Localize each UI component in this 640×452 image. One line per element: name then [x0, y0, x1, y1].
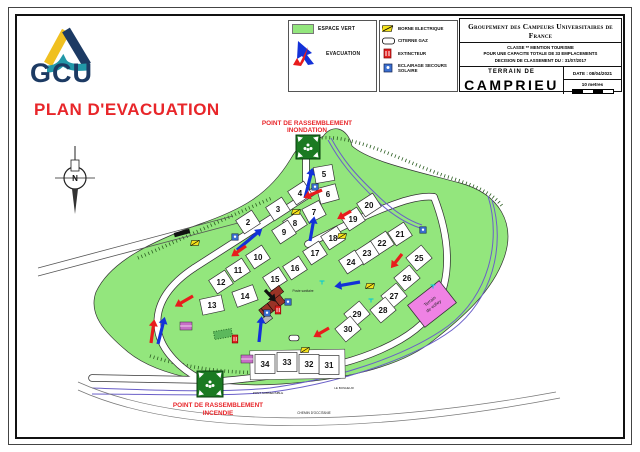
plot-31: 31: [319, 356, 339, 375]
title-block: Groupement des Campeurs Universitaires d…: [459, 18, 622, 92]
plot-number-9: 9: [282, 228, 287, 237]
plot-number-33: 33: [283, 358, 292, 367]
evacuation-arrows-icon: [292, 37, 322, 71]
page-title: PLAN D'EVACUATION: [34, 100, 220, 120]
plot-number-12: 12: [217, 278, 226, 287]
plot-number-19: 19: [349, 215, 358, 224]
plot-number-4: 4: [298, 189, 303, 198]
plot-number-13: 13: [208, 301, 217, 310]
map-label: Poste sanitaire: [292, 289, 313, 293]
eclairage-secours-label: ECLAIRAGE SECOURS SOLAIRE: [398, 63, 455, 73]
plot-number-7: 7: [312, 208, 317, 217]
citerne-gaz-label: CITERNE GAZ: [398, 38, 428, 43]
plan-date: DATE : 08/04/2021: [564, 67, 621, 80]
ext-map-icon: [275, 306, 281, 314]
plot-number-27: 27: [390, 292, 399, 301]
plot-number-29: 29: [353, 310, 362, 319]
plot-number-28: 28: [379, 306, 388, 315]
citerne-gaz-icon: [382, 37, 395, 45]
plot-33: 33: [277, 353, 297, 372]
rally-map-icon: [296, 135, 320, 159]
compass-n-label: N: [72, 174, 78, 183]
borne-map-icon: [365, 284, 374, 289]
scale-bar: [572, 89, 614, 94]
evacuation-plan-page: 2345678910111213141516171819202122232425…: [0, 0, 640, 452]
plot-number-3: 3: [276, 205, 281, 214]
class-line-2: POUR UNE CAPACITE TOTALE DE 33 EMPLACEME…: [460, 51, 621, 57]
plot-number-34: 34: [261, 360, 270, 369]
map-label: PONT SUBMERSIBLE: [253, 391, 283, 395]
class-line-3: DECISION DE CLASSEMENT DU : 31/07/2017: [460, 58, 621, 64]
map-label: POINT DE RASSEMBLEMENT: [262, 120, 352, 127]
plot-number-2: 2: [246, 218, 251, 227]
gcu-logo-text: GCU: [30, 58, 93, 89]
ecl-map-icon: [285, 299, 291, 305]
map-label: CHEMIN D'OCCITANIE: [297, 411, 331, 415]
ecl-map-icon: [420, 227, 426, 233]
plot-number-22: 22: [378, 239, 387, 248]
plot-32: 32: [299, 355, 319, 374]
extincteur-label: EXTINCTEUR: [398, 51, 426, 56]
plot-number-16: 16: [291, 264, 300, 273]
map-label: INONDATION: [287, 127, 327, 134]
site-name: CAMPRIEU: [460, 77, 563, 93]
borne-map-icon: [190, 241, 199, 246]
plot-number-14: 14: [241, 292, 250, 301]
borne-electrique-icon: [382, 24, 395, 33]
plot-number-30: 30: [344, 325, 353, 334]
plot-number-11: 11: [234, 266, 243, 275]
map-label: INCENDIE: [203, 410, 234, 417]
plot-number-20: 20: [365, 201, 374, 210]
compass-rose: N: [55, 146, 95, 214]
plot-number-15: 15: [271, 275, 280, 284]
hut-map-icon: [180, 322, 192, 330]
borne-map-icon: [291, 210, 300, 215]
borne-map-icon: [300, 348, 309, 353]
hut-map-icon: [241, 355, 253, 363]
plot-number-32: 32: [305, 360, 314, 369]
plot-number-10: 10: [254, 253, 263, 262]
map-label: LE BONHEUR: [334, 386, 354, 390]
plot-number-26: 26: [403, 274, 412, 283]
espace-vert-label: ESPACE VERT: [318, 26, 355, 32]
eclairage-secours-icon: [382, 63, 395, 73]
gcu-logo: GCU: [26, 18, 136, 96]
plot-number-23: 23: [363, 249, 372, 258]
plot-number-25: 25: [415, 254, 424, 263]
plot-34: 34: [255, 355, 275, 374]
plot-number-8: 8: [293, 219, 298, 228]
legend-espace-evacuation: ESPACE VERT EVACUATION: [288, 20, 377, 92]
classification-info: CLASSE ** MENTION TOURISME POUR UNE CAPA…: [460, 43, 621, 67]
plot-number-24: 24: [347, 258, 356, 267]
evacuation-label: EVACUATION: [326, 51, 360, 57]
organisation-name: Groupement des Campeurs Universitaires d…: [460, 19, 621, 43]
terrain-de-label: TERRAIN DE: [460, 69, 563, 75]
ext-map-icon: [232, 335, 238, 343]
ecl-map-icon: [232, 234, 238, 240]
borne-electrique-label: BORNE ELECTRIQUE: [398, 26, 443, 31]
extincteur-icon: [382, 48, 395, 59]
rally-map-icon: [197, 371, 223, 397]
ecl-map-icon: [312, 184, 318, 190]
citerne-map-icon: [289, 335, 299, 341]
ecl-map-icon: [264, 310, 270, 316]
chemin-lines: [78, 382, 560, 426]
espace-vert-swatch: [292, 24, 314, 34]
borne-map-icon: [337, 234, 346, 239]
plot-number-17: 17: [311, 249, 320, 258]
scale-label: 10 metres: [564, 80, 621, 87]
plot-number-18: 18: [329, 234, 338, 243]
plot-number-31: 31: [325, 361, 334, 370]
plot-number-6: 6: [326, 190, 331, 199]
plot-number-5: 5: [322, 170, 327, 179]
legend-equipment: BORNE ELECTRIQUE CITERNE GAZ EXTINCTEUR …: [379, 20, 458, 92]
plot-number-21: 21: [396, 230, 405, 239]
plot-5: 5: [313, 164, 334, 183]
map-label: POINT DE RASSEMBLEMENT: [173, 402, 263, 409]
